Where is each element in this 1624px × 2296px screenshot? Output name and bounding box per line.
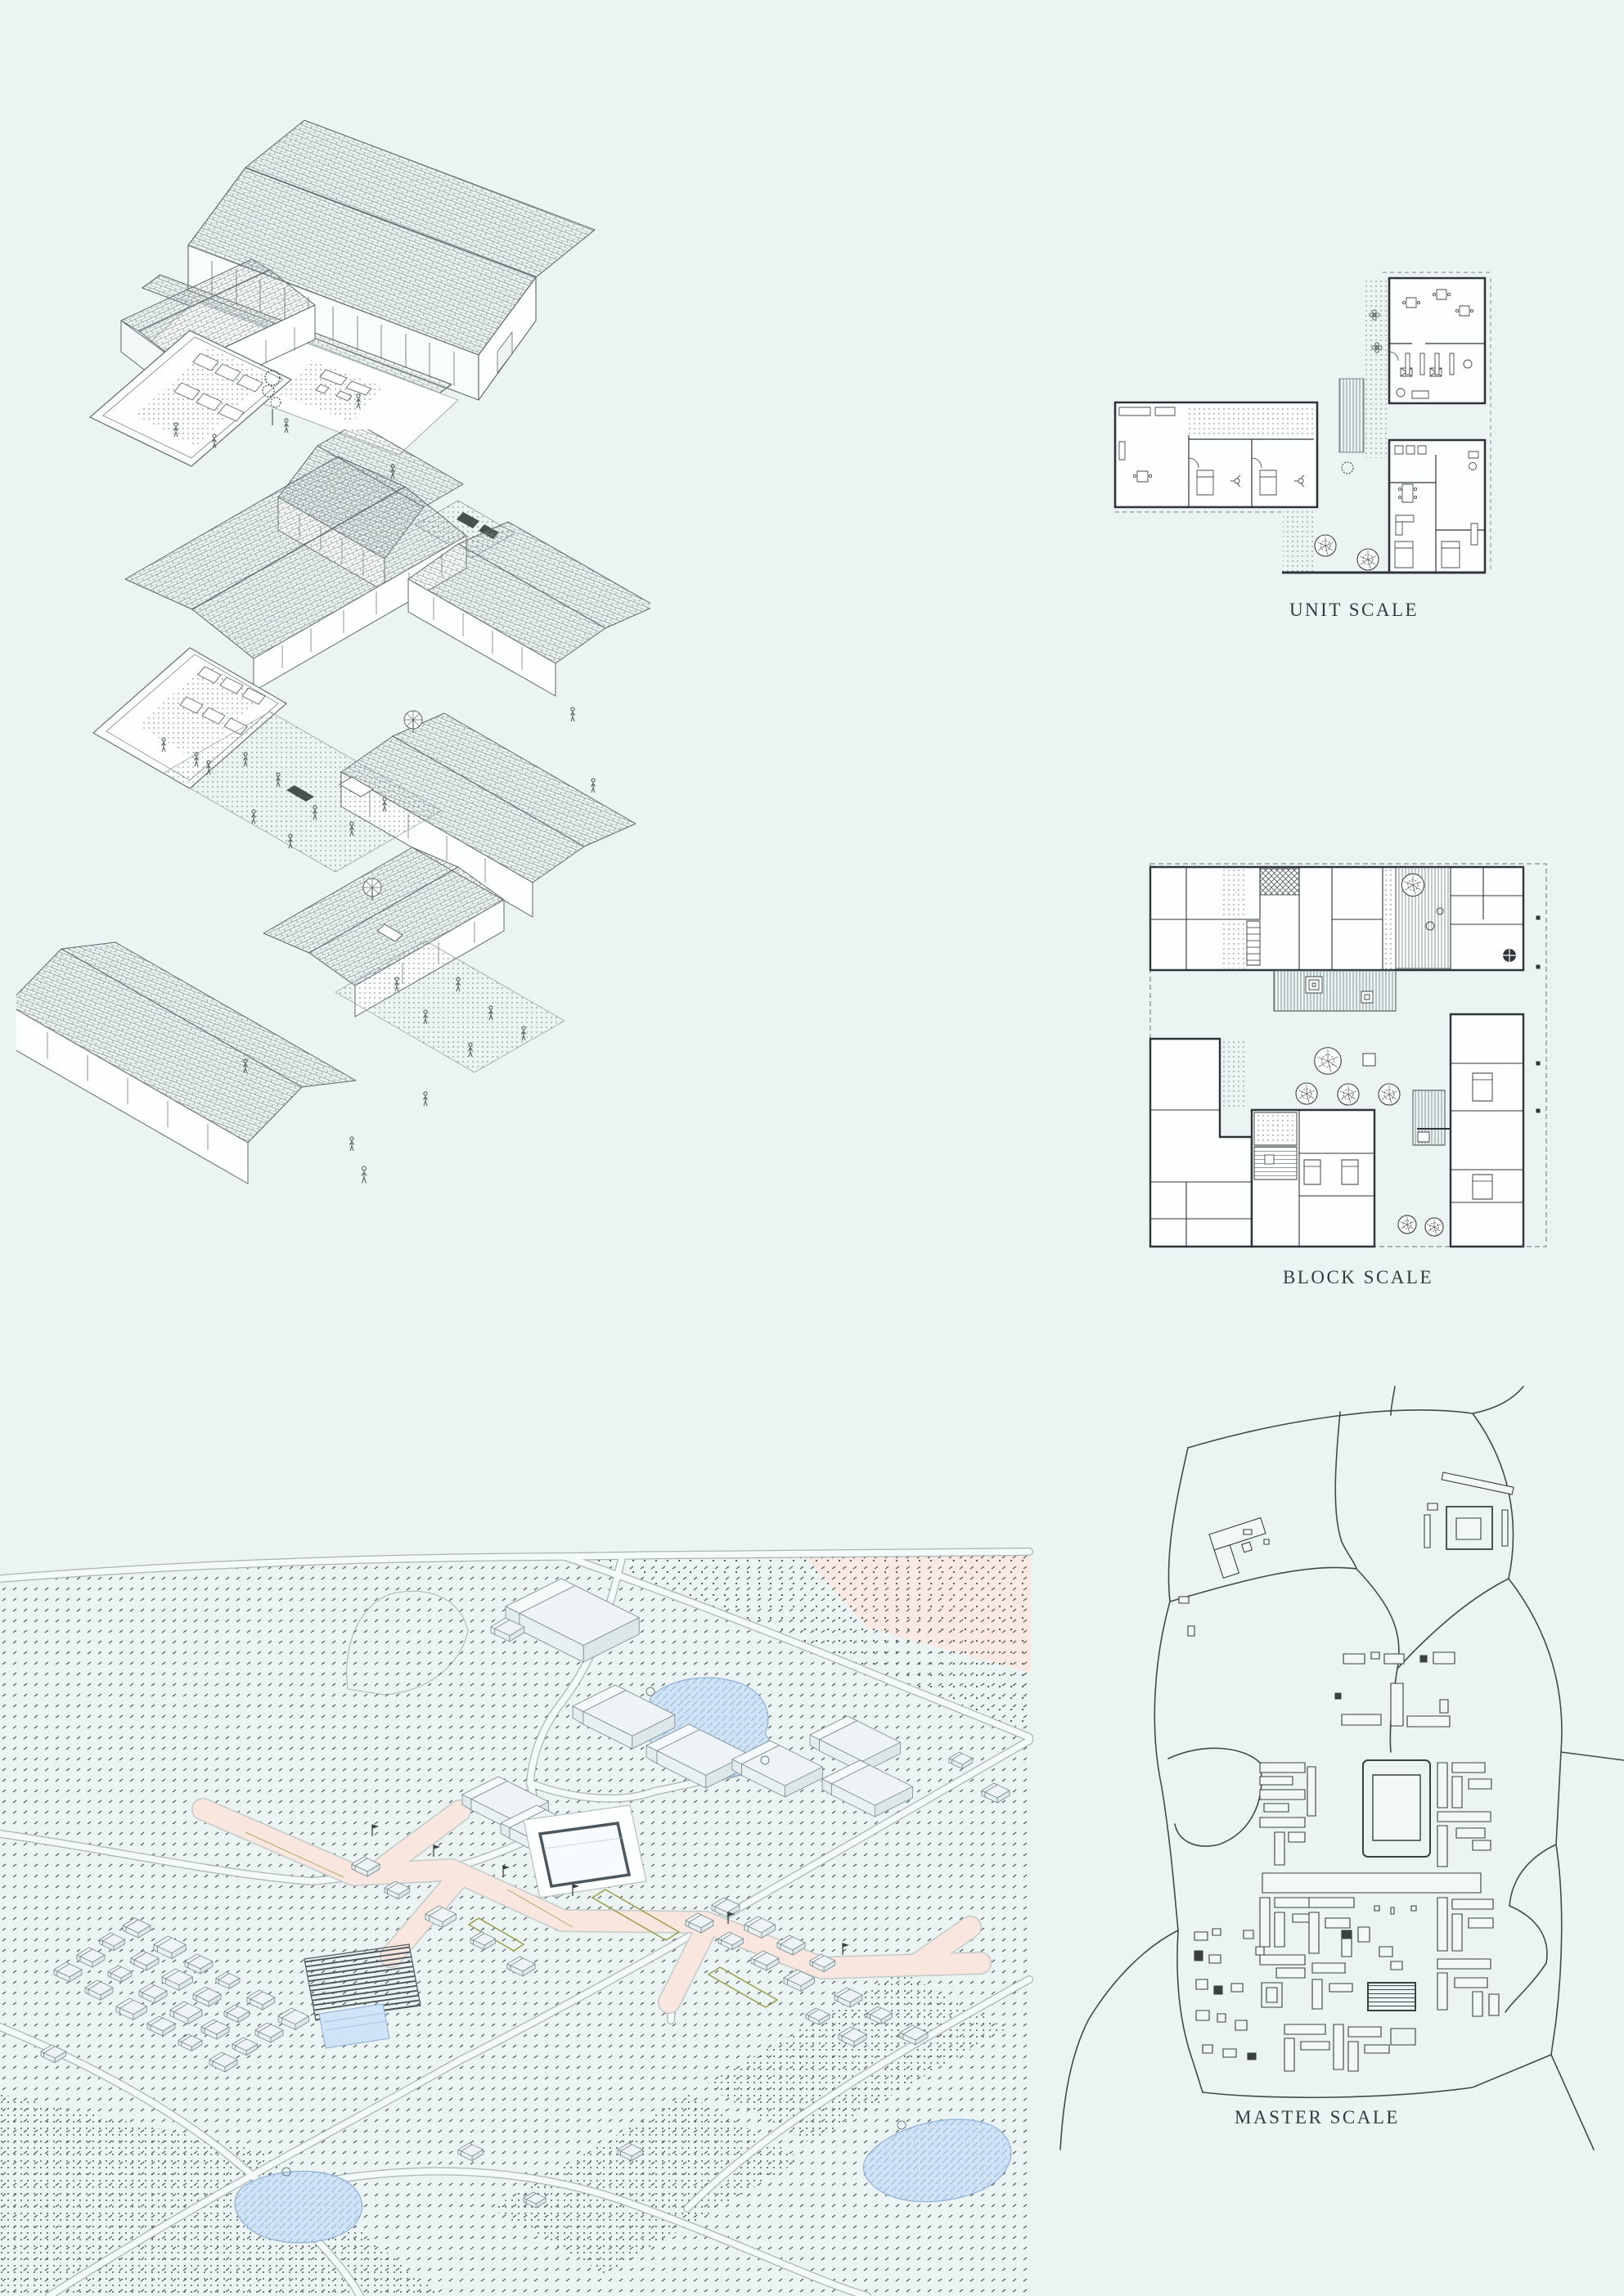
block-scale-label: BLOCK SCALE (1207, 1267, 1509, 1288)
public-pool (524, 1805, 646, 1898)
block-plan-north-band (1150, 867, 1523, 970)
master-main-street (1262, 1873, 1481, 1893)
master-lap-pool (1368, 1983, 1415, 2011)
architecture-presentation-board: UNIT SCALE (0, 0, 1624, 2296)
block-scale-axonometric-drawing (16, 429, 650, 1190)
block-wing-southwest (16, 942, 356, 1184)
master-scale-label: MASTER SCALE (1162, 2107, 1473, 2128)
block-scale-floorplan (1137, 847, 1563, 1256)
master-scale-map (1035, 1382, 1624, 2151)
master-buildings (1179, 1472, 1514, 2071)
site-axonometric-drawing (0, 1513, 1055, 2296)
unit-scale-label: UNIT SCALE (1207, 600, 1501, 621)
master-stadium (1363, 1760, 1430, 1857)
unit-scale-floorplan (1088, 258, 1514, 585)
